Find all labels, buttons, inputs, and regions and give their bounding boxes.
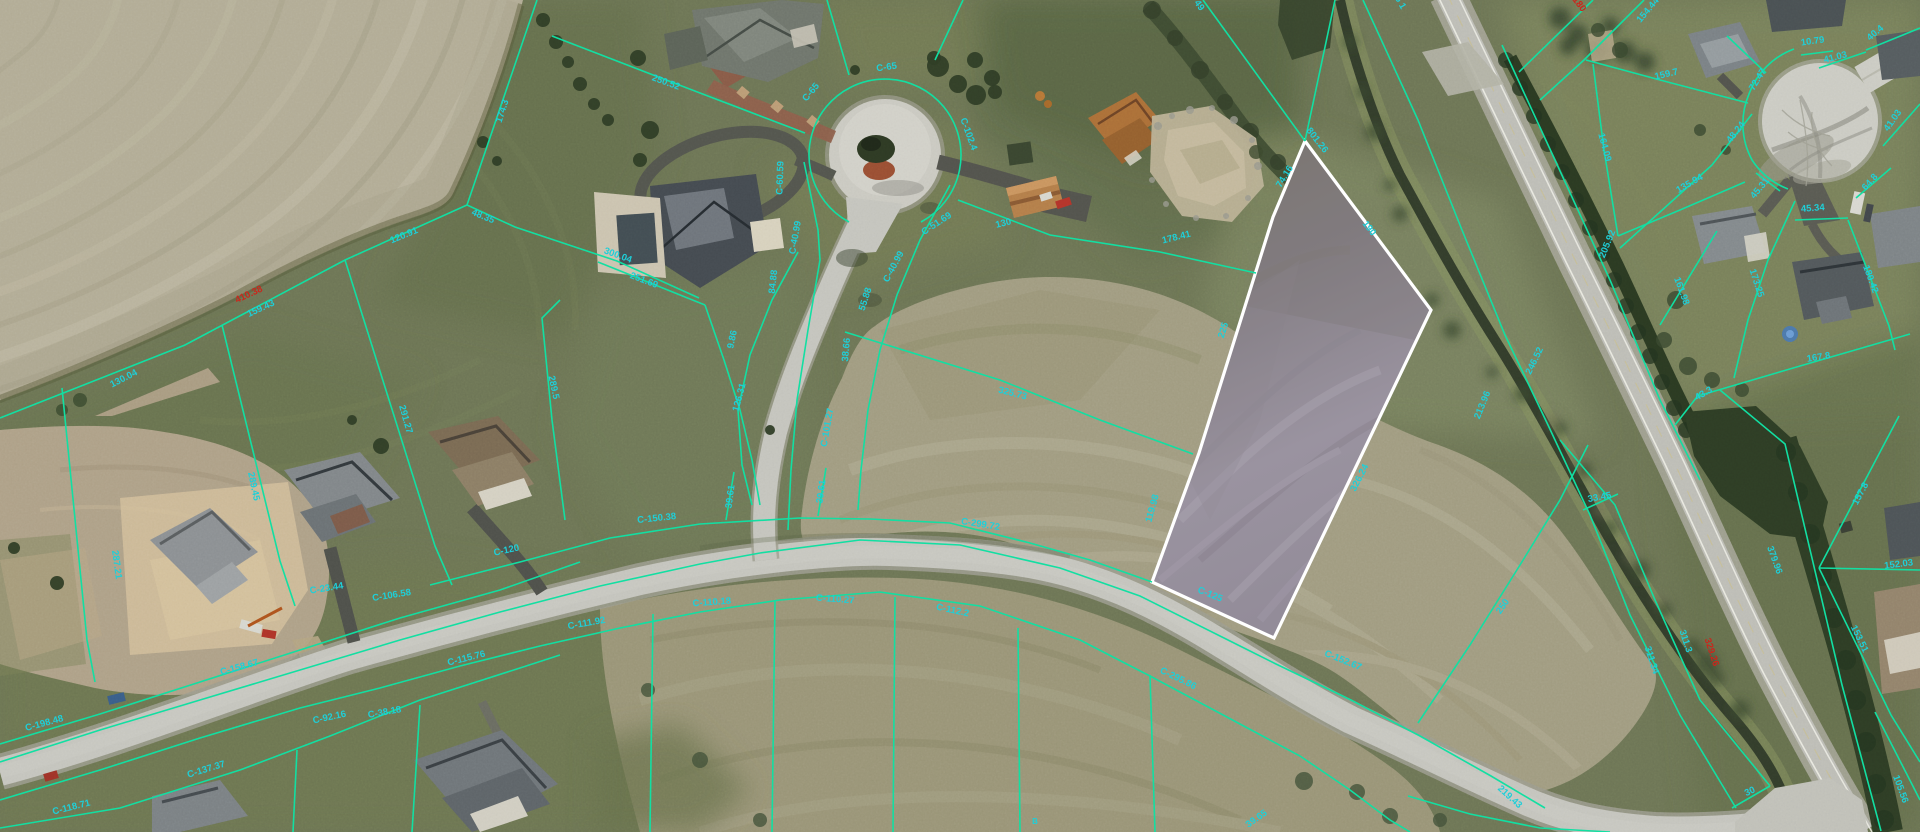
svg-text:38.66: 38.66 bbox=[840, 337, 853, 362]
svg-text:45.34: 45.34 bbox=[1801, 202, 1826, 215]
svg-text:B: B bbox=[1032, 817, 1038, 826]
svg-text:C-60.59: C-60.59 bbox=[774, 161, 786, 195]
